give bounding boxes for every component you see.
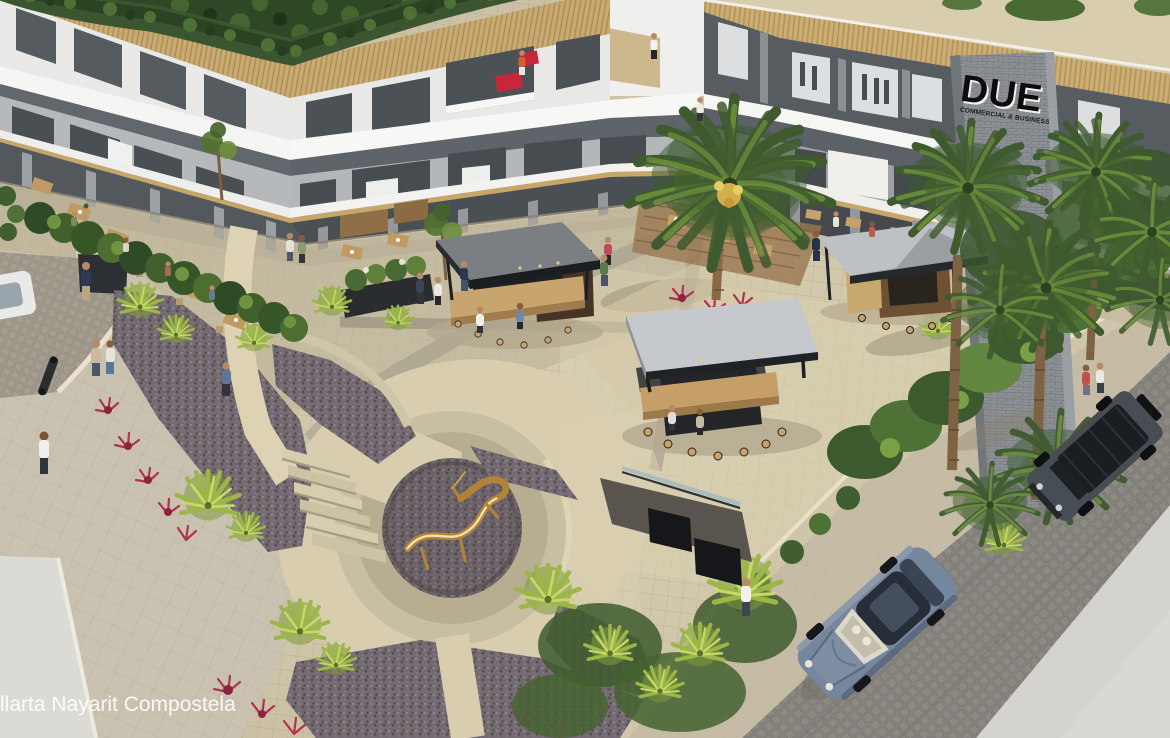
svg-text:llarta Nayarit Compostela: llarta Nayarit Compostela bbox=[0, 693, 236, 716]
